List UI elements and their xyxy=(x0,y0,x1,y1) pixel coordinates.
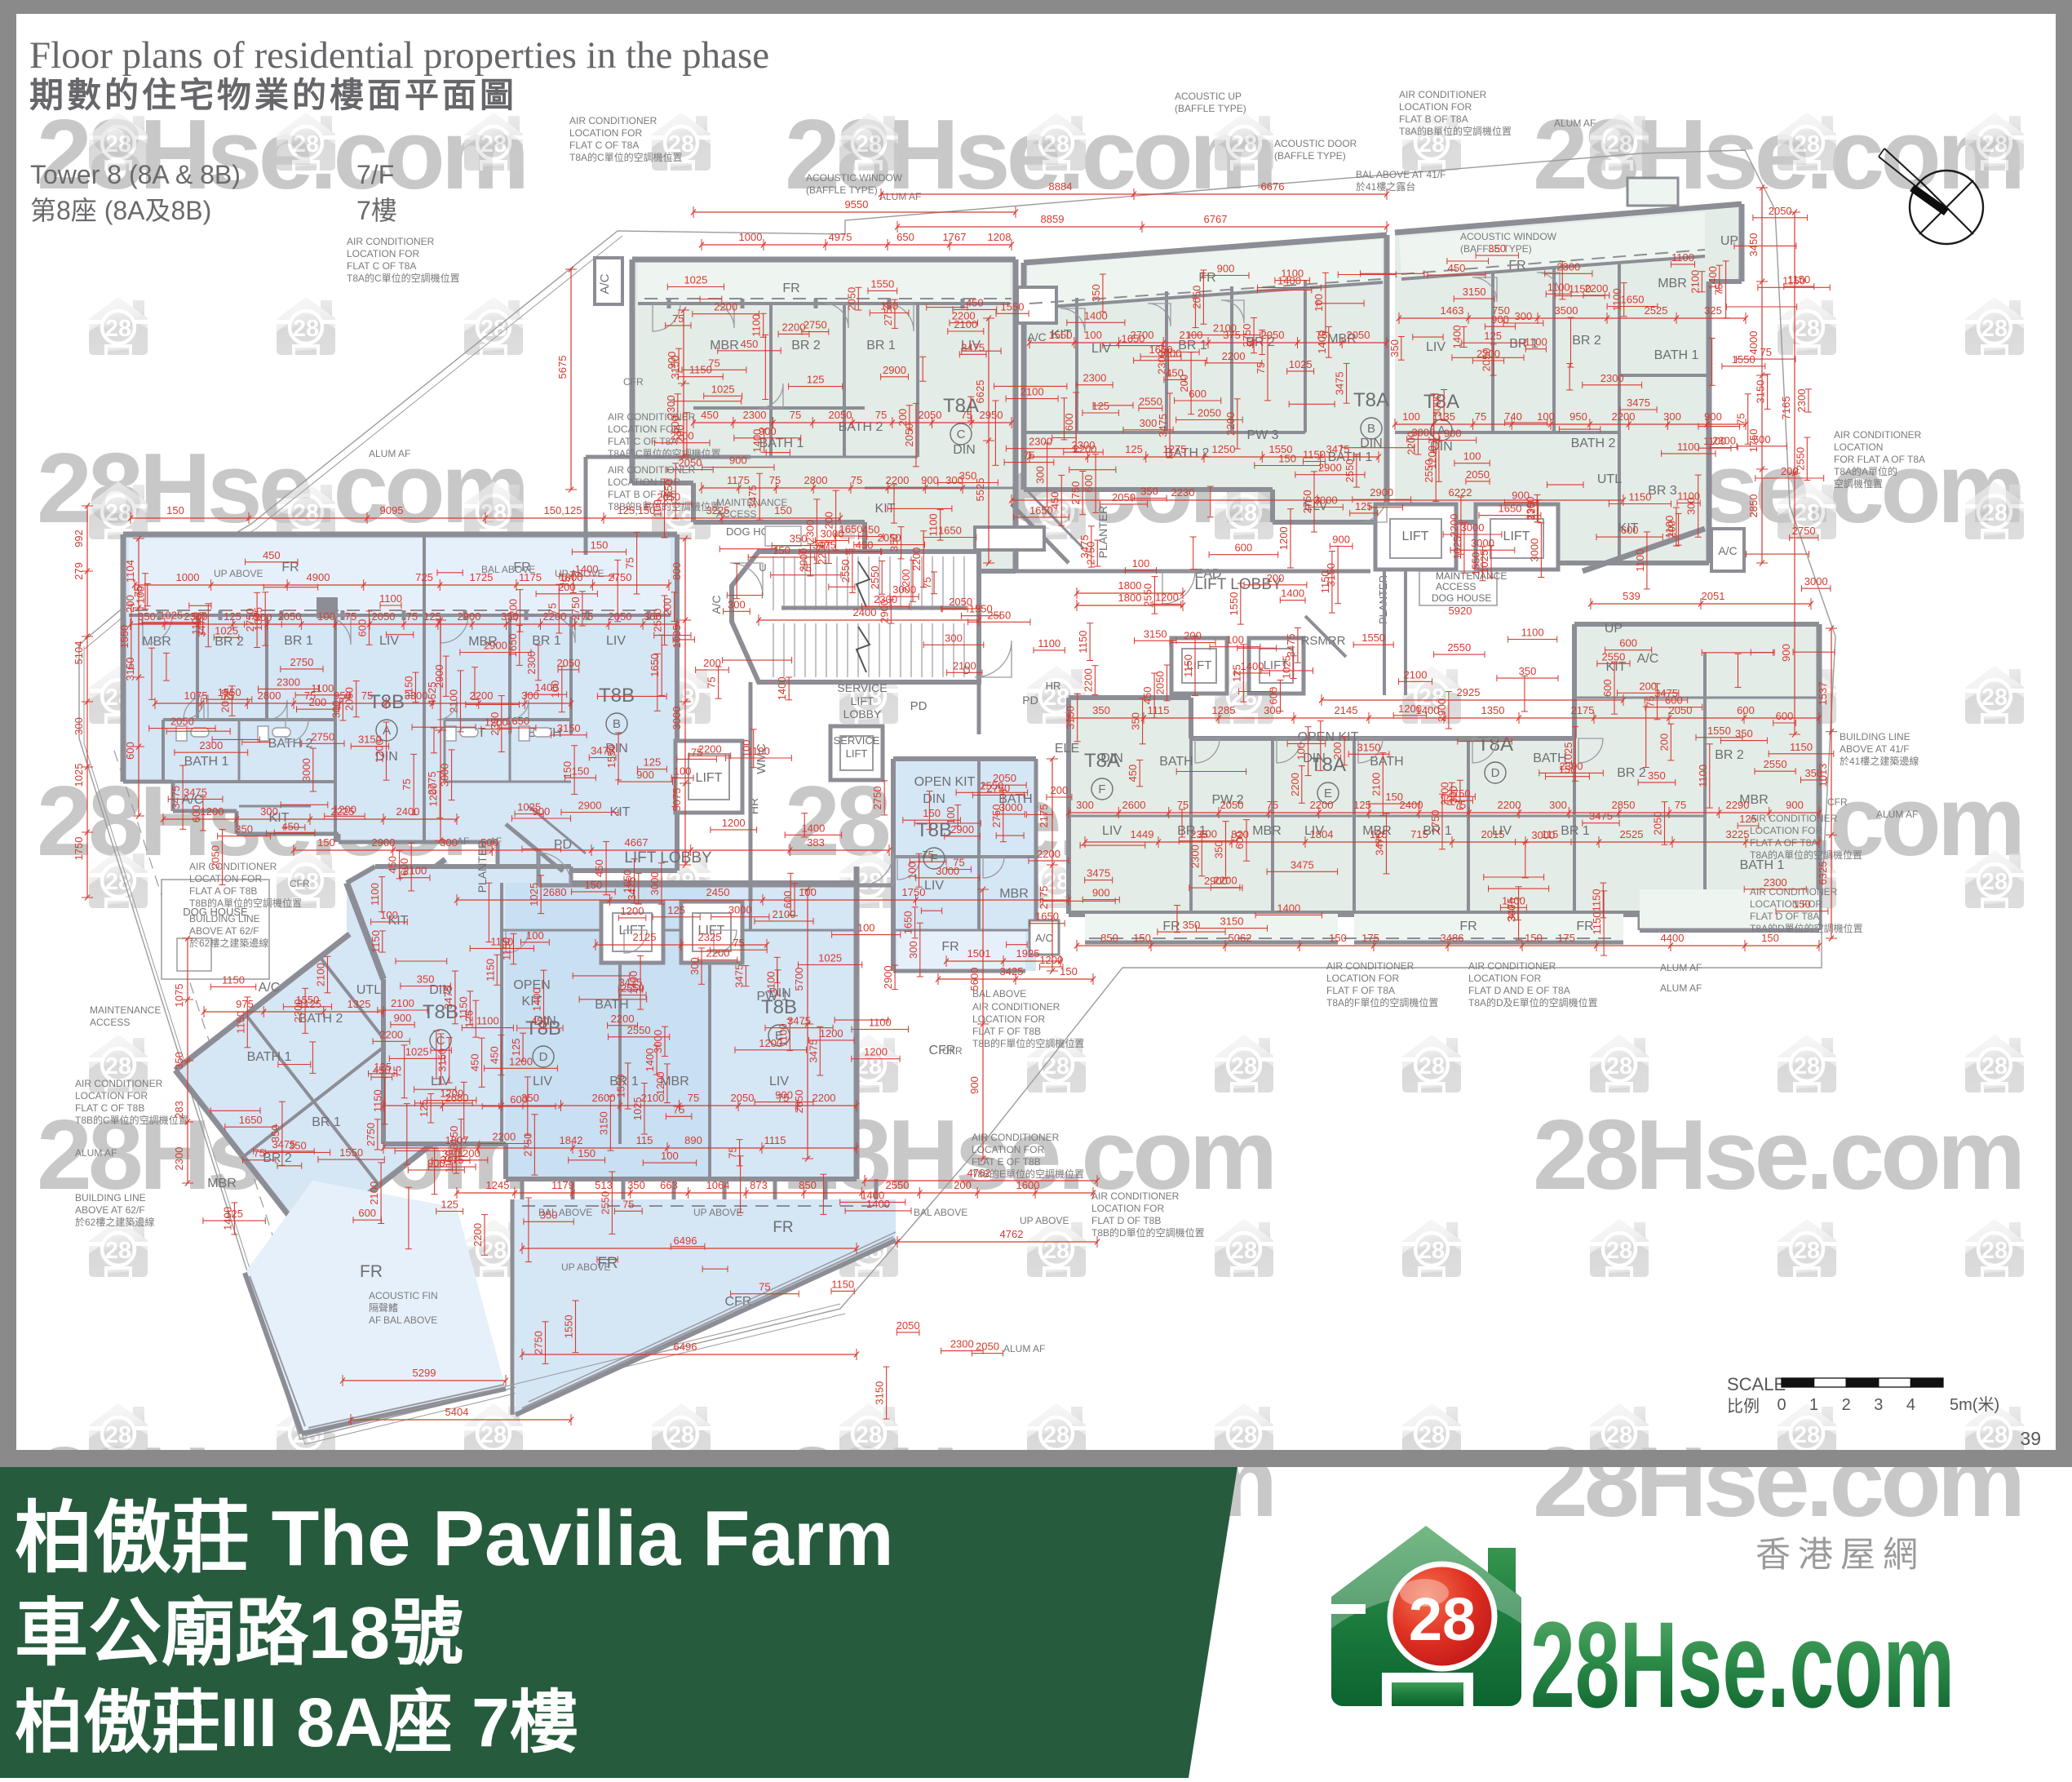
svg-text:1650: 1650 xyxy=(1122,333,1145,345)
svg-text:600: 600 xyxy=(1235,542,1253,554)
svg-text:2900: 2900 xyxy=(1318,462,1342,474)
svg-text:300: 300 xyxy=(1506,904,1518,922)
svg-text:450: 450 xyxy=(741,338,759,350)
svg-text:3150: 3150 xyxy=(1220,915,1244,928)
svg-text:2750: 2750 xyxy=(1084,542,1096,565)
svg-text:AF: AF xyxy=(457,836,469,847)
svg-text:2200: 2200 xyxy=(1214,875,1237,887)
svg-text:1200: 1200 xyxy=(507,599,520,623)
svg-text:2900: 2900 xyxy=(950,823,974,836)
svg-text:2290: 2290 xyxy=(1726,799,1750,811)
svg-text:2400: 2400 xyxy=(396,805,420,818)
svg-text:2750: 2750 xyxy=(533,1331,545,1354)
svg-text:350: 350 xyxy=(269,1124,281,1142)
svg-text:2050: 2050 xyxy=(1769,205,1792,217)
svg-text:7165: 7165 xyxy=(1780,397,1792,420)
svg-text:2145: 2145 xyxy=(1335,704,1358,716)
svg-text:125: 125 xyxy=(423,610,441,623)
svg-text:2200: 2200 xyxy=(472,1223,484,1247)
svg-text:75: 75 xyxy=(560,576,573,587)
svg-text:1175: 1175 xyxy=(727,474,750,486)
svg-text:2100: 2100 xyxy=(1213,322,1237,335)
svg-text:T8A: T8A xyxy=(1477,734,1513,756)
svg-text:A/C: A/C xyxy=(598,273,612,294)
svg-text:2050: 2050 xyxy=(1261,329,1285,341)
svg-text:350: 350 xyxy=(959,470,977,482)
svg-text:873: 873 xyxy=(750,1179,768,1191)
svg-text:600: 600 xyxy=(1082,475,1095,493)
svg-text:Tower 8 (8A & 8B): Tower 8 (8A & 8B) xyxy=(30,160,241,189)
svg-text:(BAFFLE TYPE): (BAFFLE TYPE) xyxy=(1274,150,1346,162)
svg-text:UP ABOVE: UP ABOVE xyxy=(214,568,263,579)
svg-text:200: 200 xyxy=(1184,630,1202,642)
svg-text:1650: 1650 xyxy=(1029,504,1053,516)
svg-text:1550: 1550 xyxy=(118,625,131,649)
svg-text:AF: AF xyxy=(369,1314,381,1326)
svg-text:150: 150 xyxy=(166,504,184,516)
svg-text:2750: 2750 xyxy=(521,1133,533,1157)
svg-text:2200: 2200 xyxy=(1037,848,1060,860)
svg-text:BR 1: BR 1 xyxy=(866,339,896,352)
svg-text:663: 663 xyxy=(660,1179,678,1191)
svg-text:1150: 1150 xyxy=(372,1089,384,1112)
svg-text:300: 300 xyxy=(1447,786,1459,804)
svg-text:75: 75 xyxy=(1735,413,1747,424)
svg-text:2175: 2175 xyxy=(1038,805,1050,828)
svg-text:1250: 1250 xyxy=(1212,443,1236,455)
svg-text:450: 450 xyxy=(593,859,605,877)
svg-text:LIV: LIV xyxy=(606,634,626,648)
svg-text:115: 115 xyxy=(636,1134,653,1146)
svg-text:2050: 2050 xyxy=(170,716,194,728)
svg-text:3225: 3225 xyxy=(1726,828,1750,840)
svg-text:6625: 6625 xyxy=(974,380,986,404)
svg-text:2750: 2750 xyxy=(609,571,632,583)
svg-text:T8A的C單位的空調機位置: T8A的C單位的空調機位置 xyxy=(347,272,460,284)
svg-text:900: 900 xyxy=(1217,263,1235,275)
svg-text:1325: 1325 xyxy=(348,998,371,1010)
svg-text:1400: 1400 xyxy=(776,676,788,700)
svg-text:BATH 2: BATH 2 xyxy=(1571,437,1616,450)
svg-text:2800: 2800 xyxy=(258,689,281,702)
svg-text:1150: 1150 xyxy=(1182,654,1194,677)
svg-text:CFR: CFR xyxy=(290,878,310,889)
svg-text:2550: 2550 xyxy=(1344,459,1356,482)
svg-text:600: 600 xyxy=(356,619,369,637)
svg-text:D: D xyxy=(1491,766,1500,780)
svg-text:BATH: BATH xyxy=(595,998,628,1012)
svg-text:LIFT: LIFT xyxy=(1503,530,1530,543)
svg-text:725: 725 xyxy=(415,571,433,583)
svg-text:1400: 1400 xyxy=(531,987,543,1011)
svg-text:2050: 2050 xyxy=(679,457,702,469)
svg-text:75: 75 xyxy=(622,1198,634,1210)
svg-text:FLAT B OF T8A: FLAT B OF T8A xyxy=(1399,113,1468,125)
svg-text:1650: 1650 xyxy=(239,1114,263,1126)
svg-text:2775: 2775 xyxy=(1038,886,1050,910)
svg-text:1075: 1075 xyxy=(184,689,208,702)
svg-text:2050: 2050 xyxy=(1190,286,1202,309)
svg-text:1200: 1200 xyxy=(374,739,386,763)
svg-text:3150: 3150 xyxy=(557,722,581,734)
svg-text:75: 75 xyxy=(253,1147,264,1159)
svg-text:100: 100 xyxy=(674,765,692,777)
svg-text:1175: 1175 xyxy=(519,571,542,583)
svg-text:1550: 1550 xyxy=(1707,725,1731,737)
svg-text:2750: 2750 xyxy=(365,1123,377,1146)
svg-text:1550: 1550 xyxy=(339,1146,363,1159)
svg-text:OPEN KIT: OPEN KIT xyxy=(1298,730,1359,744)
svg-text:1100: 1100 xyxy=(1038,637,1060,649)
svg-text:3475: 3475 xyxy=(1374,832,1386,856)
svg-text:第8座 (8A及8B): 第8座 (8A及8B) xyxy=(30,196,211,225)
svg-text:3150: 3150 xyxy=(1065,706,1077,729)
svg-text:1025: 1025 xyxy=(73,764,85,787)
svg-text:200: 200 xyxy=(1267,572,1285,584)
svg-text:3000: 3000 xyxy=(1314,494,1338,507)
svg-text:BATH 1: BATH 1 xyxy=(1654,348,1699,362)
svg-text:1449: 1449 xyxy=(1131,828,1154,840)
svg-text:2300: 2300 xyxy=(1072,439,1096,451)
svg-text:空調機位置: 空調機位置 xyxy=(1834,477,1883,490)
svg-text:3475: 3475 xyxy=(1627,397,1650,409)
svg-text:2100: 2100 xyxy=(391,997,414,1009)
svg-text:150: 150 xyxy=(1133,932,1151,944)
svg-text:1150: 1150 xyxy=(1790,741,1813,753)
svg-text:BUILDING LINE: BUILDING LINE xyxy=(1840,731,1910,742)
svg-text:2200: 2200 xyxy=(1082,668,1094,692)
svg-text:T8B的F單位的空調機位置: T8B的F單位的空調機位置 xyxy=(972,1037,1084,1049)
svg-text:2100: 2100 xyxy=(315,963,327,986)
svg-text:3150: 3150 xyxy=(436,1048,449,1072)
svg-text:100: 100 xyxy=(549,680,561,698)
svg-text:2200: 2200 xyxy=(812,1092,836,1104)
svg-text:1650: 1650 xyxy=(1499,503,1522,515)
svg-text:BATH 1: BATH 1 xyxy=(759,437,804,450)
svg-text:6496: 6496 xyxy=(674,1235,697,1247)
svg-text:ALUM AF: ALUM AF xyxy=(75,1147,117,1159)
svg-text:ABOVE AT 62/F: ABOVE AT 62/F xyxy=(75,1204,145,1216)
svg-text:1650: 1650 xyxy=(506,715,529,727)
svg-text:100: 100 xyxy=(1537,410,1555,423)
svg-text:1150: 1150 xyxy=(403,676,415,698)
svg-text:BR 2: BR 2 xyxy=(1715,748,1744,762)
svg-text:2100: 2100 xyxy=(954,318,977,330)
svg-text:1100: 1100 xyxy=(764,971,777,994)
svg-text:850: 850 xyxy=(1100,932,1118,944)
svg-text:1150: 1150 xyxy=(1077,631,1089,654)
svg-text:3000: 3000 xyxy=(1431,393,1443,417)
svg-text:1650: 1650 xyxy=(839,523,863,535)
svg-text:LIFT: LIFT xyxy=(696,771,723,785)
svg-text:3225: 3225 xyxy=(706,504,730,516)
svg-text:2300: 2300 xyxy=(804,520,816,543)
svg-text:2900: 2900 xyxy=(883,364,906,376)
svg-text:T8B的D單位的空調機位置: T8B的D單位的空調機位置 xyxy=(1091,1226,1205,1239)
svg-text:715: 715 xyxy=(1410,828,1428,840)
svg-text:125: 125 xyxy=(225,1208,243,1220)
svg-text:450: 450 xyxy=(966,296,984,308)
svg-text:4: 4 xyxy=(1906,1396,1915,1414)
svg-text:1100: 1100 xyxy=(476,1015,499,1027)
svg-text:125: 125 xyxy=(374,1061,392,1073)
svg-text:ALUM AF: ALUM AF xyxy=(1660,962,1702,973)
svg-text:車公廟路18號: 車公廟路18號 xyxy=(15,1593,463,1674)
svg-text:3000: 3000 xyxy=(649,871,661,895)
svg-text:100: 100 xyxy=(317,610,335,623)
svg-text:1100: 1100 xyxy=(369,883,381,906)
svg-text:1100: 1100 xyxy=(1521,627,1544,639)
svg-text:CFR: CFR xyxy=(1827,796,1848,808)
svg-text:4762: 4762 xyxy=(967,1167,991,1179)
svg-text:3150: 3150 xyxy=(1144,627,1167,640)
svg-text:3000: 3000 xyxy=(1804,575,1828,587)
svg-text:75: 75 xyxy=(1645,696,1657,707)
svg-text:3000: 3000 xyxy=(728,904,752,916)
svg-text:5675: 5675 xyxy=(556,356,569,379)
svg-text:AIR CONDITIONER: AIR CONDITIONER xyxy=(189,861,277,872)
svg-text:AIR CONDITIONER: AIR CONDITIONER xyxy=(1834,429,1922,441)
svg-text:1200: 1200 xyxy=(201,805,224,818)
svg-text:1200: 1200 xyxy=(1039,954,1063,966)
svg-text:992: 992 xyxy=(73,530,85,547)
svg-text:2550: 2550 xyxy=(627,1024,651,1036)
svg-text:3475: 3475 xyxy=(195,614,207,637)
svg-text:LIFT: LIFT xyxy=(1402,530,1429,543)
svg-text:2200: 2200 xyxy=(714,301,737,313)
svg-text:2325: 2325 xyxy=(698,931,722,943)
svg-text:1150: 1150 xyxy=(1590,889,1602,911)
svg-text:2050: 2050 xyxy=(976,1341,999,1353)
svg-text:BR 2: BR 2 xyxy=(1617,766,1646,780)
svg-text:2550: 2550 xyxy=(1447,641,1471,654)
svg-text:FLAT A OF T8B: FLAT A OF T8B xyxy=(189,885,257,897)
svg-text:2175: 2175 xyxy=(1571,704,1595,716)
svg-text:900: 900 xyxy=(1704,410,1722,423)
svg-text:1025: 1025 xyxy=(528,883,540,907)
svg-text:2050: 2050 xyxy=(278,610,302,623)
svg-text:FLAT F OF T8A: FLAT F OF T8A xyxy=(1326,985,1395,996)
svg-text:100: 100 xyxy=(135,586,147,604)
svg-text:1150: 1150 xyxy=(1787,273,1810,286)
svg-text:ACOUSTIC FIN: ACOUSTIC FIN xyxy=(369,1290,438,1301)
svg-text:900: 900 xyxy=(666,352,678,370)
svg-text:FOR FLAT A OF T8A: FOR FLAT A OF T8A xyxy=(1834,454,1925,465)
svg-text:1650: 1650 xyxy=(938,525,962,537)
svg-text:2300: 2300 xyxy=(1524,497,1536,521)
svg-text:3475: 3475 xyxy=(170,786,182,809)
svg-text:3000: 3000 xyxy=(671,707,683,730)
svg-text:ELE: ELE xyxy=(1055,742,1079,756)
svg-text:100: 100 xyxy=(1084,329,1102,341)
svg-text:900: 900 xyxy=(1092,887,1110,899)
svg-text:4000: 4000 xyxy=(1747,331,1760,355)
svg-text:125: 125 xyxy=(667,904,685,916)
svg-text:975: 975 xyxy=(236,998,254,1010)
svg-text:1100: 1100 xyxy=(777,1023,789,1046)
svg-text:100: 100 xyxy=(1463,450,1481,463)
svg-text:75: 75 xyxy=(673,1103,684,1115)
svg-text:2200: 2200 xyxy=(706,947,730,960)
svg-text:BR 2: BR 2 xyxy=(215,635,244,649)
svg-text:3000: 3000 xyxy=(1531,829,1555,841)
svg-text:650: 650 xyxy=(897,231,914,243)
svg-text:125: 125 xyxy=(418,1099,430,1117)
svg-text:2850: 2850 xyxy=(1747,494,1760,518)
svg-text:ALUM AF: ALUM AF xyxy=(1660,982,1702,994)
svg-text:3475: 3475 xyxy=(1157,414,1169,437)
svg-text:600: 600 xyxy=(1619,637,1637,649)
svg-text:BATH 1: BATH 1 xyxy=(247,1050,292,1064)
svg-text:1150: 1150 xyxy=(1629,491,1652,503)
svg-text:325: 325 xyxy=(1704,304,1722,317)
svg-text:AIR CONDITIONER: AIR CONDITIONER xyxy=(972,1132,1060,1143)
svg-text:3150: 3150 xyxy=(1357,741,1381,753)
svg-text:2300: 2300 xyxy=(1795,389,1808,413)
svg-text:FR: FR xyxy=(773,1219,793,1236)
svg-text:3000: 3000 xyxy=(439,763,451,787)
svg-text:2200: 2200 xyxy=(671,430,694,442)
svg-text:600: 600 xyxy=(1665,694,1683,707)
svg-text:350: 350 xyxy=(540,1208,558,1221)
svg-text:75: 75 xyxy=(769,474,781,486)
svg-text:2050: 2050 xyxy=(919,409,942,421)
svg-text:3475: 3475 xyxy=(442,986,454,1009)
svg-text:100: 100 xyxy=(380,909,398,921)
svg-text:300: 300 xyxy=(945,632,963,644)
svg-text:1501: 1501 xyxy=(967,947,991,960)
svg-text:2200: 2200 xyxy=(1612,410,1636,423)
svg-text:75: 75 xyxy=(624,557,636,569)
svg-text:383: 383 xyxy=(807,836,825,849)
svg-text:1150: 1150 xyxy=(689,364,712,376)
svg-text:UP ABOVE: UP ABOVE xyxy=(561,1261,610,1273)
svg-text:350: 350 xyxy=(417,973,435,986)
svg-text:ACOUSTIC UP: ACOUSTIC UP xyxy=(1175,91,1242,102)
svg-text:2900: 2900 xyxy=(797,548,809,572)
svg-text:1025: 1025 xyxy=(517,801,541,813)
svg-text:2050: 2050 xyxy=(609,610,632,623)
svg-text:75: 75 xyxy=(790,409,801,421)
svg-text:200: 200 xyxy=(463,1147,480,1159)
svg-text:75: 75 xyxy=(1475,410,1486,423)
svg-text:1150: 1150 xyxy=(234,1011,246,1034)
svg-text:450: 450 xyxy=(1166,366,1184,379)
svg-text:75: 75 xyxy=(759,1281,770,1293)
svg-text:ACOUSTIC DOOR: ACOUSTIC DOOR xyxy=(1274,138,1357,149)
svg-text:2200: 2200 xyxy=(816,541,828,565)
svg-text:1150: 1150 xyxy=(1303,449,1326,461)
svg-text:F: F xyxy=(1098,782,1105,796)
svg-text:1650: 1650 xyxy=(507,633,519,657)
svg-text:1200: 1200 xyxy=(1155,591,1179,603)
svg-text:SCALE: SCALE xyxy=(1727,1374,1786,1394)
svg-text:75: 75 xyxy=(688,1092,699,1104)
svg-text:3000: 3000 xyxy=(1411,426,1435,438)
svg-text:PD: PD xyxy=(1022,694,1038,707)
svg-text:100: 100 xyxy=(526,929,544,942)
svg-text:3000: 3000 xyxy=(652,1030,664,1053)
svg-text:1200: 1200 xyxy=(333,803,356,815)
svg-text:3486: 3486 xyxy=(1441,932,1464,944)
svg-text:200: 200 xyxy=(897,409,909,427)
svg-text:9095: 9095 xyxy=(380,504,404,516)
svg-text:BUILDING LINE: BUILDING LINE xyxy=(189,913,260,924)
svg-text:1550: 1550 xyxy=(870,277,894,290)
svg-text:8859: 8859 xyxy=(1041,213,1065,225)
svg-text:740: 740 xyxy=(1504,410,1522,423)
svg-text:UP ABOVE: UP ABOVE xyxy=(693,1207,742,1218)
svg-text:450: 450 xyxy=(1127,765,1139,782)
svg-text:A/C: A/C xyxy=(1035,932,1053,944)
svg-text:1550: 1550 xyxy=(218,686,241,698)
svg-text:UTL: UTL xyxy=(356,983,381,997)
svg-text:3500: 3500 xyxy=(1555,304,1578,317)
svg-text:300: 300 xyxy=(1034,466,1047,484)
svg-text:350: 350 xyxy=(1804,767,1822,779)
svg-text:4762: 4762 xyxy=(1000,1228,1024,1240)
svg-text:CFR: CFR xyxy=(725,1295,752,1309)
svg-text:AIR CONDITIONER: AIR CONDITIONER xyxy=(1399,89,1487,100)
svg-text:450: 450 xyxy=(489,1046,501,1064)
svg-text:2750: 2750 xyxy=(871,786,883,809)
svg-text:MBR: MBR xyxy=(207,1177,237,1190)
svg-text:BR 1: BR 1 xyxy=(532,634,561,648)
svg-text:DIN: DIN xyxy=(953,443,976,457)
svg-text:FLAT C OF T8A: FLAT C OF T8A xyxy=(608,436,677,447)
svg-text:3: 3 xyxy=(1874,1396,1883,1414)
svg-text:1064: 1064 xyxy=(706,1179,730,1191)
svg-text:2100: 2100 xyxy=(403,865,427,877)
svg-text:BATH: BATH xyxy=(1159,755,1193,769)
svg-text:FR: FR xyxy=(360,1262,383,1281)
svg-text:1200: 1200 xyxy=(440,1088,463,1100)
svg-text:600: 600 xyxy=(1233,831,1246,849)
svg-text:1000: 1000 xyxy=(176,571,200,583)
svg-text:900: 900 xyxy=(921,474,939,486)
svg-text:2300: 2300 xyxy=(173,1147,185,1171)
svg-text:2300: 2300 xyxy=(950,1338,974,1350)
svg-text:(BAFFLE TYPE): (BAFFLE TYPE) xyxy=(806,184,878,196)
svg-text:3475: 3475 xyxy=(733,964,745,988)
svg-text:2750: 2750 xyxy=(1429,810,1441,834)
svg-text:AIR CONDITIONER: AIR CONDITIONER xyxy=(608,411,696,423)
svg-text:0: 0 xyxy=(1777,1396,1786,1414)
svg-text:5404: 5404 xyxy=(445,1406,469,1418)
svg-text:150: 150 xyxy=(1385,791,1403,803)
svg-text:350: 350 xyxy=(627,1179,645,1191)
svg-text:300: 300 xyxy=(1515,310,1533,322)
svg-text:4667: 4667 xyxy=(625,836,649,849)
svg-text:200: 200 xyxy=(1331,742,1344,760)
svg-text:3000: 3000 xyxy=(999,801,1023,813)
svg-text:LOCATION FOR: LOCATION FOR xyxy=(189,873,262,884)
svg-text:100: 100 xyxy=(661,1150,679,1162)
svg-text:LOCATION FOR: LOCATION FOR xyxy=(569,127,642,139)
svg-text:75: 75 xyxy=(1675,799,1686,811)
svg-text:1200: 1200 xyxy=(1398,703,1422,715)
svg-text:2750: 2750 xyxy=(1069,481,1082,505)
svg-text:LIV: LIV xyxy=(769,1075,789,1088)
svg-text:T8A的C單位的空調機位置: T8A的C單位的空調機位置 xyxy=(569,151,683,163)
svg-text:(BAFFLE TYPE): (BAFFLE TYPE) xyxy=(1175,103,1246,114)
svg-text:1550: 1550 xyxy=(615,1075,627,1098)
svg-text:2100: 2100 xyxy=(448,689,460,713)
svg-text:1100: 1100 xyxy=(1703,435,1726,447)
svg-text:1150: 1150 xyxy=(490,935,513,947)
svg-text:1842: 1842 xyxy=(560,1134,583,1146)
svg-text:900: 900 xyxy=(1332,534,1350,546)
